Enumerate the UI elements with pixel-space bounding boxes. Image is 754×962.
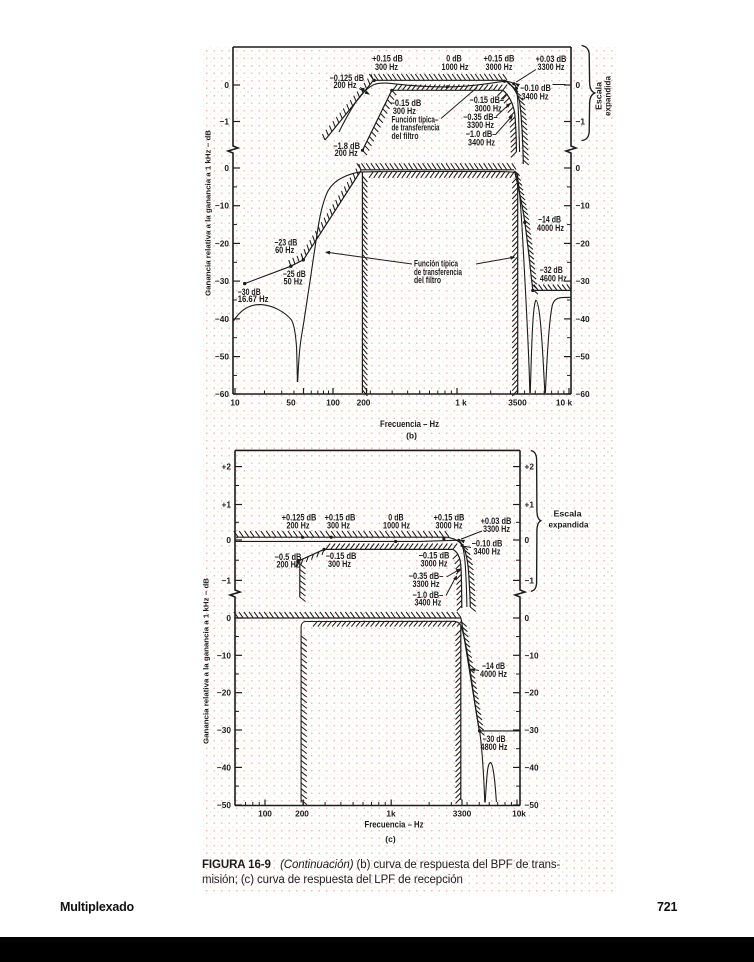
svg-text:3400 Hz: 3400 Hz bbox=[474, 547, 501, 557]
svg-text:−30: −30 bbox=[215, 276, 229, 286]
svg-text:−40: −40 bbox=[576, 314, 590, 324]
svg-text:200 Hz: 200 Hz bbox=[335, 148, 359, 158]
svg-text:200 Hz: 200 Hz bbox=[333, 80, 357, 90]
svg-text:4000 Hz: 4000 Hz bbox=[480, 669, 507, 679]
svg-text:−10: −10 bbox=[217, 650, 231, 660]
svg-text:50 Hz: 50 Hz bbox=[284, 277, 304, 287]
svg-text:4800 Hz: 4800 Hz bbox=[481, 742, 508, 752]
svg-text:−10: −10 bbox=[525, 650, 539, 660]
svg-text:60 Hz: 60 Hz bbox=[275, 245, 295, 255]
svg-text:300 Hz: 300 Hz bbox=[328, 559, 352, 569]
svg-text:3400 Hz: 3400 Hz bbox=[522, 92, 549, 102]
svg-text:Ganancia relativa a la gananci: Ganancia relativa a la ganancia a 1 kHz … bbox=[202, 578, 211, 744]
svg-text:100: 100 bbox=[258, 809, 272, 819]
svg-text:Frecuencia – Hz: Frecuencia – Hz bbox=[380, 419, 440, 429]
svg-text:3000 Hz: 3000 Hz bbox=[486, 62, 513, 72]
svg-text:200: 200 bbox=[357, 398, 371, 408]
svg-text:0: 0 bbox=[576, 80, 581, 90]
svg-text:0: 0 bbox=[226, 535, 231, 545]
svg-text:200: 200 bbox=[295, 809, 309, 819]
svg-text:expandida: expandida bbox=[604, 75, 613, 116]
svg-text:0: 0 bbox=[226, 613, 231, 623]
svg-text:−30: −30 bbox=[217, 725, 231, 735]
svg-text:1000 Hz: 1000 Hz bbox=[442, 62, 469, 72]
svg-text:3300: 3300 bbox=[453, 809, 472, 819]
svg-text:3000 Hz: 3000 Hz bbox=[421, 559, 448, 569]
svg-text:0: 0 bbox=[576, 163, 581, 173]
svg-text:−20: −20 bbox=[576, 238, 590, 248]
svg-text:−1: −1 bbox=[525, 575, 535, 585]
svg-text:+1: +1 bbox=[222, 500, 232, 510]
svg-text:−40: −40 bbox=[215, 314, 229, 324]
svg-text:(b): (b) bbox=[406, 431, 417, 441]
svg-text:−40: −40 bbox=[525, 762, 539, 772]
svg-text:1000 Hz: 1000 Hz bbox=[383, 521, 410, 531]
svg-text:−50: −50 bbox=[217, 800, 231, 810]
svg-text:Escala: Escala bbox=[554, 509, 582, 519]
svg-text:3400 Hz: 3400 Hz bbox=[414, 598, 441, 608]
svg-text:+2: +2 bbox=[525, 462, 535, 472]
svg-text:−50: −50 bbox=[525, 800, 539, 810]
svg-text:100: 100 bbox=[326, 398, 340, 408]
svg-text:(c): (c) bbox=[385, 834, 396, 844]
svg-text:−30: −30 bbox=[525, 725, 539, 735]
svg-text:−10: −10 bbox=[576, 201, 590, 211]
svg-text:0: 0 bbox=[224, 80, 229, 90]
svg-text:4000 Hz: 4000 Hz bbox=[537, 223, 564, 233]
svg-text:3300 Hz: 3300 Hz bbox=[483, 524, 510, 534]
svg-text:−1: −1 bbox=[220, 117, 230, 127]
svg-text:−20: −20 bbox=[215, 238, 229, 248]
svg-text:200 Hz: 200 Hz bbox=[276, 560, 300, 570]
svg-text:−40: −40 bbox=[217, 762, 231, 772]
svg-text:3000 Hz: 3000 Hz bbox=[436, 521, 463, 531]
svg-text:3300 Hz: 3300 Hz bbox=[413, 579, 440, 589]
svg-text:10k: 10k bbox=[512, 809, 526, 819]
svg-text:300 Hz: 300 Hz bbox=[375, 62, 399, 72]
svg-text:−10: −10 bbox=[215, 201, 229, 211]
svg-text:50: 50 bbox=[286, 398, 296, 408]
svg-text:del filtro: del filtro bbox=[392, 131, 419, 141]
svg-text:0: 0 bbox=[525, 535, 530, 545]
svg-text:+1: +1 bbox=[525, 500, 535, 510]
svg-text:4600 Hz: 4600 Hz bbox=[540, 273, 567, 283]
svg-text:−30: −30 bbox=[576, 276, 590, 286]
svg-text:3300 Hz: 3300 Hz bbox=[538, 62, 565, 72]
svg-text:10: 10 bbox=[230, 398, 240, 408]
svg-text:300 Hz: 300 Hz bbox=[327, 521, 351, 531]
svg-text:−50: −50 bbox=[215, 352, 229, 362]
svg-text:Frecuencia – Hz: Frecuencia – Hz bbox=[365, 820, 425, 830]
svg-text:1k: 1k bbox=[386, 809, 396, 819]
svg-text:10 k: 10 k bbox=[556, 398, 573, 408]
svg-text:Ganancia relativa a la gananci: Ganancia relativa a la ganancia a 1 kHz … bbox=[204, 130, 213, 296]
svg-text:−20: −20 bbox=[525, 688, 539, 698]
svg-text:+2: +2 bbox=[222, 462, 232, 472]
svg-text:16.67 Hz: 16.67 Hz bbox=[238, 294, 269, 304]
svg-text:−20: −20 bbox=[217, 688, 231, 698]
svg-text:200 Hz: 200 Hz bbox=[286, 521, 310, 531]
svg-text:−60: −60 bbox=[576, 389, 590, 399]
svg-text:−50: −50 bbox=[576, 352, 590, 362]
svg-text:0: 0 bbox=[224, 163, 229, 173]
svg-text:3400 Hz: 3400 Hz bbox=[468, 138, 495, 148]
svg-text:del filtro: del filtro bbox=[414, 275, 441, 285]
svg-text:Escala: Escala bbox=[595, 81, 604, 110]
svg-text:−60: −60 bbox=[215, 389, 229, 399]
svg-text:0: 0 bbox=[525, 613, 530, 623]
svg-text:expandida: expandida bbox=[549, 520, 589, 530]
svg-text:3500: 3500 bbox=[508, 398, 527, 408]
svg-text:−1: −1 bbox=[576, 117, 586, 127]
svg-text:1 k: 1 k bbox=[455, 398, 467, 408]
svg-text:−1: −1 bbox=[222, 575, 232, 585]
